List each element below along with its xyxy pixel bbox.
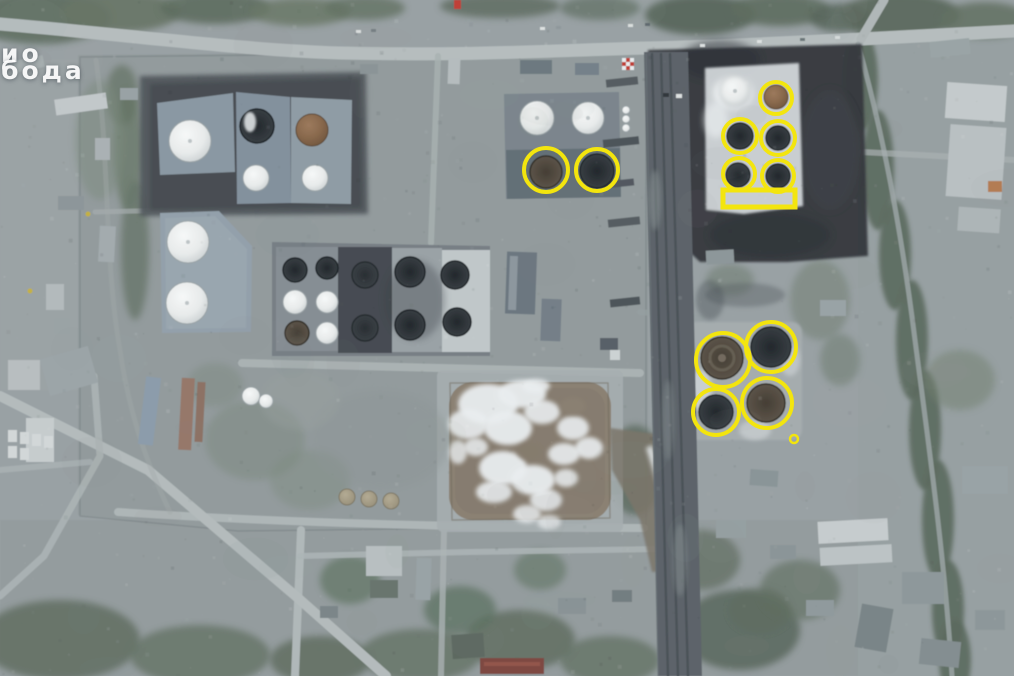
noise-speck [848,411,851,414]
noise-speck [207,214,210,217]
noise-speck [835,184,837,186]
noise-speck [389,505,393,509]
noise-speck [103,94,106,97]
noise-speck [370,372,371,373]
noise-speck [644,567,647,570]
noise-speck [317,13,319,15]
noise-speck [620,616,622,618]
noise-speck [82,23,85,26]
noise-speck [396,529,397,530]
noise-speck [878,665,881,668]
soot [800,90,860,210]
noise-speck [89,405,91,407]
noise-speck [372,471,376,475]
noise-speck [753,358,755,360]
noise-speck [301,242,305,246]
noise-speck [558,660,561,663]
mottle [259,555,314,580]
noise-speck [54,463,56,465]
tank-damaged [764,85,788,109]
noise-speck [785,597,789,601]
noise-speck [894,566,896,568]
foam [557,416,589,440]
noise-speck [108,101,112,105]
shed [32,434,41,446]
noise-speck [436,162,438,164]
noise-speck [876,449,880,453]
noise-speck [937,229,941,233]
noise-speck [658,359,661,362]
noise-speck [730,22,733,25]
noise-speck [132,41,134,43]
noise-speck [585,530,589,534]
noise-speck [900,88,903,91]
noise-speck [995,217,997,219]
noise-speck [213,556,216,559]
noise-speck [664,61,665,62]
noise-speck [733,315,734,316]
noise-speck [375,358,377,360]
noise-speck [656,487,660,491]
building [957,207,1001,234]
noise-speck [177,625,180,628]
mottle [517,243,576,285]
noise-speck [641,196,644,199]
noise-speck [423,231,425,233]
noise-speck [143,333,144,334]
noise-speck [397,327,398,328]
noise-speck [144,96,147,99]
noise-speck [323,537,324,538]
noise-speck [899,382,901,384]
noise-speck [289,490,293,494]
gravel [649,170,661,230]
noise-speck [456,159,460,163]
noise-speck [241,104,242,105]
noise-speck [305,510,308,513]
noise-speck [629,84,630,85]
noise-speck [657,560,659,562]
watermark-line-2: бода [1,58,85,83]
noise-speck [448,420,451,423]
mottle [878,120,903,138]
noise-speck [59,639,62,642]
noise-speck [749,650,752,653]
mottle [91,334,146,382]
noise-speck [506,19,509,22]
mottle [547,176,595,219]
noise-speck [503,520,507,524]
noise-speck [813,455,814,456]
noise-speck [769,4,772,7]
noise-speck [583,525,586,528]
noise-speck [834,279,836,281]
noise-speck [873,49,875,51]
noise-speck [136,336,139,339]
noise-speck [117,136,120,139]
noise-speck [138,1,140,3]
mottle [724,635,769,656]
noise-speck [961,135,964,138]
clarifier [242,387,260,405]
noise-speck [596,162,598,164]
noise-speck [444,335,448,339]
noise-speck [769,491,773,495]
noise-speck [383,197,386,200]
mottle [487,482,525,508]
noise-speck [759,250,762,253]
noise-speck [447,583,449,585]
tank-vent [188,139,192,143]
noise-speck [97,337,100,340]
noise-speck [805,89,807,91]
building [806,600,834,616]
noise-speck [467,356,469,358]
grass [187,363,243,407]
noise-speck [698,617,700,619]
noise-speck [736,22,737,23]
noise-speck [739,447,741,449]
noise-speck [92,294,93,295]
noise-speck [487,421,488,422]
noise-speck [350,638,353,641]
noise-speck [917,45,920,48]
noise-speck [544,42,547,45]
noise-speck [930,561,933,564]
noise-speck [593,285,594,286]
noise-speck [188,498,192,502]
tank-rust [296,114,328,146]
noise-speck [632,226,633,227]
noise-speck [391,501,392,502]
car [800,38,805,41]
building [706,249,735,264]
noise-speck [876,270,879,273]
noise-speck [300,65,303,68]
noise-speck [279,449,281,451]
noise-speck [627,548,629,550]
noise-speck [408,212,410,214]
noise-speck [707,492,710,495]
noise-speck [922,642,923,643]
noise-speck [439,259,441,261]
noise-speck [474,467,476,469]
noise-speck [380,51,384,55]
noise-speck [475,13,476,14]
noise-speck [771,496,773,498]
mottle [219,316,271,355]
noise-speck [505,379,507,381]
noise-speck [638,266,641,269]
noise-speck [967,549,970,552]
noise-speck [75,173,79,177]
noise-speck [300,52,304,56]
noise-speck [397,474,400,477]
noise-speck [648,56,651,59]
noise-speck [647,276,649,278]
noise-speck [875,115,877,117]
trees [730,588,790,632]
building [612,590,632,602]
noise-speck [533,353,536,356]
noise-speck [71,374,73,376]
noise-speck [631,514,632,515]
tank-burned [283,258,307,282]
ring-core [718,354,726,362]
noise-speck [21,622,22,623]
noise-speck [373,229,375,231]
tank-burned [441,261,469,289]
noise-speck [501,239,503,241]
noise-speck [197,443,200,446]
shed [8,446,17,458]
noise-speck [426,175,428,177]
mottle [175,421,211,435]
noise-speck [99,226,101,228]
noise-speck [887,425,890,428]
noise-speck [569,201,570,202]
noise-speck [960,593,961,594]
checker-cell [626,62,630,66]
noise-speck [315,6,318,9]
noise-speck [181,274,185,278]
noise-speck [50,217,54,221]
basin-ground-gap [517,444,541,460]
truck [663,93,669,97]
noise-speck [673,109,676,112]
noise-speck [693,315,694,316]
building [962,466,1008,494]
noise-speck [469,23,473,27]
building [95,138,110,160]
noise-speck [351,548,354,551]
noise-speck [373,307,374,308]
car [700,44,705,47]
noise-speck [68,654,70,656]
building [902,572,944,604]
noise-speck [472,288,474,290]
noise-speck [738,587,741,590]
noise-speck [316,164,318,166]
noise-speck [599,541,600,542]
noise-speck [423,179,426,182]
noise-speck [711,163,712,164]
noise-speck [476,558,478,560]
noise-speck [240,407,242,409]
shed [20,432,29,444]
noise-speck [247,470,249,472]
noise-speck [290,637,292,639]
noise-speck [529,403,533,407]
noise-speck [157,198,160,201]
noise-speck [120,417,124,421]
noise-speck [749,257,752,260]
noise-speck [300,486,303,489]
noise-speck [510,628,513,631]
noise-speck [809,7,813,11]
noise-speck [551,441,552,442]
noise-speck [407,284,408,285]
noise-speck [458,306,459,307]
noise-speck [907,91,909,93]
noise-speck [160,97,161,98]
noise-speck [606,450,609,453]
noise-speck [541,347,545,351]
foam [524,400,560,424]
noise-speck [414,408,416,410]
noise-speck [9,4,11,6]
noise-speck [37,415,40,418]
noise-speck [240,6,242,8]
noise-speck [368,177,370,179]
noise-speck [168,389,171,392]
noise-speck [866,344,869,347]
noise-speck [667,630,668,631]
noise-speck [599,225,601,227]
noise-speck [486,648,488,650]
shed [44,436,53,448]
building [448,58,461,84]
noise-speck [400,360,402,362]
noise-speck [64,516,68,520]
noise-speck [2,673,4,675]
noise-speck [332,474,334,476]
noise-speck [184,538,186,540]
noise-speck [195,393,198,396]
noise-speck [689,236,691,238]
noise-speck [745,81,749,85]
noise-speck [31,611,34,614]
noise-speck [489,619,491,621]
noise-speck [442,438,445,441]
building [520,60,552,74]
noise-speck [684,143,688,147]
noise-speck [634,146,637,149]
noise-speck [459,158,463,162]
noise-speck [719,278,723,282]
noise-speck [389,553,391,555]
noise-speck [191,210,194,213]
noise-speck [819,13,821,15]
noise-speck [1010,72,1013,75]
noise-speck [831,315,834,318]
noise-speck [618,665,622,669]
noise-speck [21,183,25,187]
mottle [448,142,497,183]
foam [522,379,550,393]
noise-speck [907,361,911,365]
mottle [460,79,519,110]
noise-speck [767,59,768,60]
noise-speck [126,385,127,386]
building [975,610,1005,630]
noise-speck [65,456,67,458]
noise-speck [862,34,865,37]
mottle [805,256,879,290]
noise-speck [790,424,792,426]
noise-speck [955,98,958,101]
noise-speck [986,268,989,271]
noise-speck [813,363,814,364]
mottle [879,655,899,674]
noise-speck [335,66,337,68]
noise-speck [209,635,212,638]
noise-speck [847,522,848,523]
noise-speck [734,465,736,467]
noise-speck [665,291,669,295]
noise-speck [981,62,982,63]
noise-speck [467,18,471,22]
noise-speck [533,568,534,569]
tank-white [302,165,328,191]
noise-speck [229,578,231,580]
noise-speck [635,253,638,256]
noise-speck [394,58,396,60]
building [770,545,796,559]
noise-speck [48,428,50,430]
noise-speck [97,600,98,601]
building [540,299,561,342]
noise-speck [573,101,576,104]
noise-speck [267,126,270,129]
noise-speck [591,617,595,621]
noise-speck [200,241,202,243]
noise-speck [623,524,625,526]
noise-speck [669,424,672,427]
noise-speck [88,218,90,220]
noise-speck [122,378,125,381]
noise-speck [281,593,282,594]
noise-speck [319,595,321,597]
noise-speck [493,83,494,84]
noise-speck [784,586,785,587]
noise-speck [70,482,72,484]
noise-speck [314,490,316,492]
noise-speck [116,640,119,643]
noise-speck [928,226,931,229]
car [556,26,561,29]
noise-speck [816,606,817,607]
noise-speck [277,341,278,342]
noise-speck [490,307,493,310]
truck [676,94,682,98]
noise-speck [228,518,231,521]
tank-white-small [622,106,630,114]
noise-speck [447,134,449,136]
noise-speck [984,647,987,650]
mottle [521,598,554,630]
noise-speck [537,174,538,175]
noise-speck [682,503,685,506]
noise-speck [291,325,294,328]
noise-speck [481,494,484,497]
noise-speck [6,330,10,334]
noise-speck [660,525,662,527]
noise-speck [561,348,563,350]
noise-speck [492,408,494,410]
noise-speck [419,312,421,314]
noise-speck [452,136,455,139]
noise-speck [1000,133,1003,136]
noise-speck [860,104,861,105]
noise-speck [612,9,614,11]
noise-speck [743,0,745,2]
noise-speck [260,477,262,479]
noise-speck [672,141,676,145]
building [820,300,846,316]
noise-speck [909,429,911,431]
noise-speck [729,230,732,233]
